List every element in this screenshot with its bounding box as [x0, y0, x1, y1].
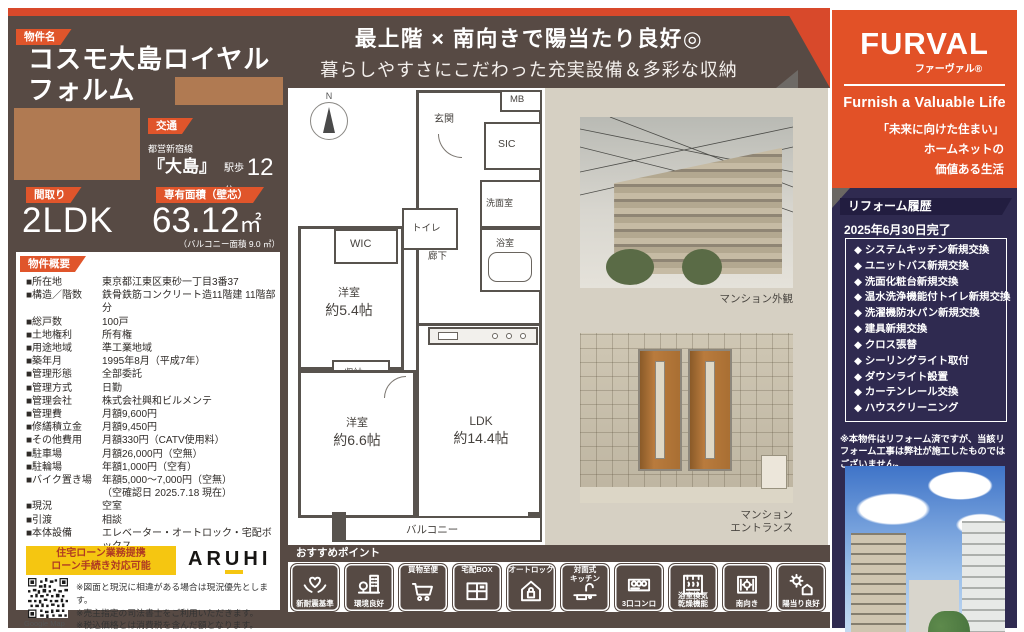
- disclaimer-note: ※図面と現況に相違がある場合は現況優先とします。: [76, 581, 274, 607]
- badge-label: 南向き: [724, 600, 770, 609]
- overview-row-label: ■用途地域: [26, 342, 102, 355]
- floor-plan: N MB 玄関 SIC 洗面室 浴室 トイレ 廊下 WIC 洋室 約5.4帖 収…: [288, 88, 545, 545]
- deliverybox-badge: 宅配BOX: [452, 563, 502, 612]
- reform-item: ◆ ユニットバス新規交換: [854, 259, 1004, 275]
- qr-code: [28, 578, 68, 618]
- furval-logo-katakana: ファーヴァル®: [832, 60, 1017, 75]
- overview-row: ■管理費月額9,600円: [26, 408, 276, 421]
- entrance-caption: マンション エントランス: [663, 509, 793, 535]
- reform-history-ribbon: リフォーム履歴: [840, 198, 1012, 215]
- property-summary-panel: 物件名 コスモ大島ロイヤル フォルム 交通 都営新宿線 『大島』 駅歩 12 分…: [8, 16, 288, 628]
- bedroom2-label: 洋室 約6.6帖: [314, 414, 400, 450]
- washroom-label: 洗面室: [486, 196, 513, 209]
- overview-row-label: ■その他費用: [26, 434, 102, 447]
- sunny-badge: 陽当り良好: [776, 563, 826, 612]
- station-name: 『大島』: [148, 152, 216, 177]
- south-badge: 南向き: [722, 563, 772, 612]
- kitchen-badge: 対面式 キッチン: [560, 563, 610, 612]
- reform-item: ◆ ハウスクリーニング: [854, 401, 1004, 417]
- badge-label: 宅配BOX: [454, 566, 500, 575]
- reform-item: ◆ カーテンレール交換: [854, 385, 1004, 401]
- reform-items-list: ◆ システムキッチン新規交換◆ ユニットバス新規交換◆ 洗面化粧台新規交換◆ 温…: [845, 238, 1007, 422]
- loan-badge: 住宅ローン業務提携 ローン手続き対応可能: [26, 546, 176, 575]
- overview-row-value: 相談: [102, 514, 276, 527]
- overview-row-value: 月額26,000円（空無）: [102, 448, 276, 461]
- overview-row: ■構造／階数鉄骨鉄筋コンクリート造11階建 11階部分: [26, 289, 276, 315]
- hallway-label: 廊下: [428, 248, 447, 262]
- overview-row-value: 1995年8月（平成7年）: [102, 355, 276, 368]
- overview-row: ■バイク置き場年額5,000～7,000円（空無） （空確認日 2025.7.1…: [26, 474, 276, 500]
- overview-row-value: 年額1,000円（空有）: [102, 461, 276, 474]
- south-icon: [734, 571, 761, 598]
- shopping-badge: 買物至便: [398, 563, 448, 612]
- environment-badge: 環境良好: [344, 563, 394, 612]
- headline-banner: 最上階 × 南向きで陽当たり良好◎ 暮らしやすさにこだわった充実設備＆多彩な収納: [288, 16, 830, 88]
- badge-label: オートロック: [508, 566, 554, 575]
- overview-row-label: ■修繕積立金: [26, 421, 102, 434]
- overview-row-label: ■管理会社: [26, 395, 102, 408]
- bathtub: [488, 252, 532, 282]
- disclaimer-notes: ※図面と現況に相違がある場合は現況優先とします。※売主指定の司法書士をご利用いた…: [76, 581, 274, 632]
- overview-row: ■駐輪場年額1,000円（空有）: [26, 461, 276, 474]
- sic-label: SIC: [498, 138, 516, 150]
- genkan-label: 玄関: [434, 110, 454, 125]
- property-name-ribbon: 物件名: [16, 29, 72, 45]
- overview-row-label: ■バイク置き場: [26, 474, 102, 500]
- overview-row-value: 100戸: [102, 316, 276, 329]
- divider: [844, 84, 1005, 86]
- decorative-triangle: [776, 70, 798, 88]
- view-photo: [845, 466, 1005, 632]
- overview-row-value: 株式会社興和ビルメンテ: [102, 395, 276, 408]
- overview-row: ■用途地域準工業地域: [26, 342, 276, 355]
- overview-row-label: ■総戸数: [26, 316, 102, 329]
- reform-history-panel: リフォーム履歴 2025年6月30日完了 ◆ システムキッチン新規交換◆ ユニッ…: [832, 188, 1017, 628]
- overview-row: ■総戸数100戸: [26, 316, 276, 329]
- overview-row-value: 月額9,450円: [102, 421, 276, 434]
- qr-caption: Google Map: [24, 619, 65, 628]
- bedroom1-label: 洋室 約5.4帖: [306, 284, 392, 320]
- quake-badge: 新耐震基準: [290, 563, 340, 612]
- recommend-bar: おすすめポイント: [288, 545, 830, 562]
- overview-row-value: 鉄骨鉄筋コンクリート造11階建 11階部分: [102, 289, 276, 315]
- badge-label: 対面式 キッチン: [562, 566, 608, 583]
- overview-row: ■管理会社株式会社興和ビルメンテ: [26, 395, 276, 408]
- real-estate-flyer: 物件名 コスモ大島ロイヤル フォルム 交通 都営新宿線 『大島』 駅歩 12 分…: [0, 0, 1024, 632]
- entrance-photo: [580, 333, 793, 503]
- autolock-badge: オートロック: [506, 563, 556, 612]
- overview-row-label: ■土地権利: [26, 329, 102, 342]
- overview-table: ■所在地東京都江東区東砂一丁目3番37■構造／階数鉄骨鉄筋コンクリート造11階建…: [26, 276, 276, 566]
- furval-logo: FURVAL: [832, 26, 1017, 62]
- reform-item: ◆ クロス張替: [854, 338, 1004, 354]
- overview-row-value: 東京都江東区東砂一丁目3番37: [102, 276, 276, 289]
- reform-completion-date: 2025年6月30日完了: [844, 221, 951, 238]
- autolock-icon: [518, 577, 545, 604]
- stove-badge: 3口コンロ: [614, 563, 664, 612]
- badge-label: 買物至便: [400, 566, 446, 575]
- balcony-area-note: （バルコニー面積 9.0 ㎡）: [148, 238, 280, 250]
- wic-label: WIC: [350, 238, 371, 250]
- overview-row-label: ■管理形態: [26, 368, 102, 381]
- compass-icon: N: [310, 102, 348, 140]
- toilet-label: トイレ: [412, 220, 441, 234]
- property-overview-box: 物件概要 ■所在地東京都江東区東砂一丁目3番37■構造／階数鉄骨鉄筋コンクリート…: [16, 252, 280, 610]
- environment-icon: [356, 571, 383, 598]
- exterior-caption: マンション外観: [663, 293, 793, 306]
- headline-line1: 最上階 × 南向きで陽当たり良好◎: [355, 22, 703, 53]
- access-ribbon: 交通: [148, 118, 193, 134]
- overview-row: ■土地権利所有権: [26, 329, 276, 342]
- bathdryer-badge: 浴室換気 乾燥機能: [668, 563, 718, 612]
- reform-item: ◆ 洗濯機防水パン新規交換: [854, 306, 1004, 322]
- overview-row-value: 年額5,000～7,000円（空無） （空確認日 2025.7.18 現在）: [102, 474, 276, 500]
- redacted-price-area: [14, 108, 140, 180]
- badge-label: 新耐震基準: [292, 600, 338, 609]
- headline-text-block: 最上階 × 南向きで陽当たり良好◎ 暮らしやすさにこだわった充実設備＆多彩な収納: [288, 16, 830, 88]
- overview-row-label: ■駐輪場: [26, 461, 102, 474]
- overview-row-value: 空室: [102, 500, 276, 513]
- overview-row: ■駐車場月額26,000円（空無）: [26, 448, 276, 461]
- overview-row-label: ■駐車場: [26, 448, 102, 461]
- overview-row: ■修繕積立金月額9,450円: [26, 421, 276, 434]
- area-value: 63.12㎡: [152, 201, 262, 241]
- overview-row-label: ■構造／階数: [26, 289, 102, 315]
- mb-label: MB: [510, 94, 524, 105]
- bathroom-label: 浴室: [496, 236, 514, 249]
- overview-row-value: 準工業地域: [102, 342, 276, 355]
- overview-row-value: 全部委託: [102, 368, 276, 381]
- overview-row-label: ■所在地: [26, 276, 102, 289]
- overview-ribbon: 物件概要: [20, 256, 86, 272]
- disclaimer-note: ※売主指定の司法書士をご利用いただきます。: [76, 607, 274, 620]
- headline-line2: 暮らしやすさにこだわった充実設備＆多彩な収納: [320, 56, 737, 82]
- deliverybox-icon: [464, 577, 491, 604]
- reform-item: ◆ 温水洗浄機能付トイレ新規交換: [854, 290, 1004, 306]
- reform-item: ◆ システムキッチン新規交換: [854, 243, 1004, 259]
- sunny-icon: [788, 571, 815, 598]
- overview-row: ■築年月1995年8月（平成7年）: [26, 355, 276, 368]
- reform-disclaimer: ※本物件はリフォーム済ですが、当該リフォーム工事は弊社が施工したものではございま…: [840, 433, 1011, 470]
- reform-item: ◆ シーリングライト取付: [854, 354, 1004, 370]
- overview-row-label: ■現況: [26, 500, 102, 513]
- overview-row: ■管理方式日勤: [26, 382, 276, 395]
- badge-label: 3口コンロ: [616, 600, 662, 609]
- reform-item: ◆ 建具新規交換: [854, 322, 1004, 338]
- stove-icon: [626, 571, 653, 598]
- ldk-label: LDK 約14.4帖: [436, 414, 526, 448]
- overview-row: ■現況空室: [26, 500, 276, 513]
- shopping-icon: [410, 577, 437, 604]
- disclaimer-note: ※税込価格とは消費税を含んだ額となります。: [76, 619, 274, 632]
- reform-item: ◆ ダウンライト設置: [854, 370, 1004, 386]
- bottom-accent-bar: [288, 612, 830, 628]
- brand-header: FURVAL ファーヴァル® Furnish a Valuable Life 「…: [832, 10, 1017, 188]
- overview-row-label: ■管理方式: [26, 382, 102, 395]
- brand-tagline-jp: 「未来に向けた住まい」 ホームネットの 価値ある生活: [832, 120, 1017, 180]
- badge-label: 陽当り良好: [778, 600, 824, 609]
- feature-badges-row: 新耐震基準環境良好買物至便宅配BOXオートロック対面式 キッチン3口コンロ浴室換…: [288, 562, 830, 612]
- balcony-label: バルコニー: [406, 522, 458, 537]
- badge-label: 浴室換気 乾燥機能: [670, 592, 716, 609]
- overview-row-value: 日勤: [102, 382, 276, 395]
- exterior-photo: [580, 117, 793, 288]
- overview-row-label: ■築年月: [26, 355, 102, 368]
- reform-item: ◆ 洗面化粧台新規交換: [854, 275, 1004, 291]
- brand-panel: FURVAL ファーヴァル® Furnish a Valuable Life 「…: [832, 10, 1017, 628]
- overview-row: ■引渡相談: [26, 514, 276, 527]
- overview-row-label: ■管理費: [26, 408, 102, 421]
- photos-panel: マンション外観 マンション エントランス: [545, 88, 828, 545]
- overview-row-label: ■引渡: [26, 514, 102, 527]
- badge-label: 環境良好: [346, 600, 392, 609]
- overview-row: ■所在地東京都江東区東砂一丁目3番37: [26, 276, 276, 289]
- quake-icon: [302, 571, 329, 598]
- aruhi-logo: ARUHI: [188, 548, 271, 571]
- overview-row: ■その他費用月額330円（CATV使用料）: [26, 434, 276, 447]
- overview-row-value: 月額330円（CATV使用料）: [102, 434, 276, 447]
- redacted-price-area: [175, 77, 283, 105]
- layout-value: 2LDK: [22, 201, 114, 241]
- overview-row: ■管理形態全部委託: [26, 368, 276, 381]
- overview-row-value: 月額9,600円: [102, 408, 276, 421]
- top-accent-bar: [8, 8, 830, 16]
- brand-tagline-en: Furnish a Valuable Life: [832, 95, 1017, 111]
- overview-row-value: 所有権: [102, 329, 276, 342]
- kitchen-counter: [428, 327, 538, 345]
